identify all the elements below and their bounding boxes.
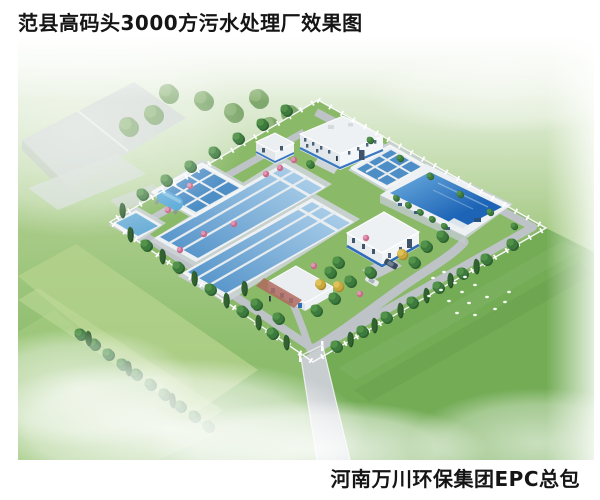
contractor-caption: 河南万川环保集团EPC总包 (18, 463, 580, 492)
page-title: 范县高码头3000方污水处理厂效果图 (18, 7, 578, 36)
rendering-image (18, 38, 594, 460)
plant-rendering (18, 38, 594, 460)
